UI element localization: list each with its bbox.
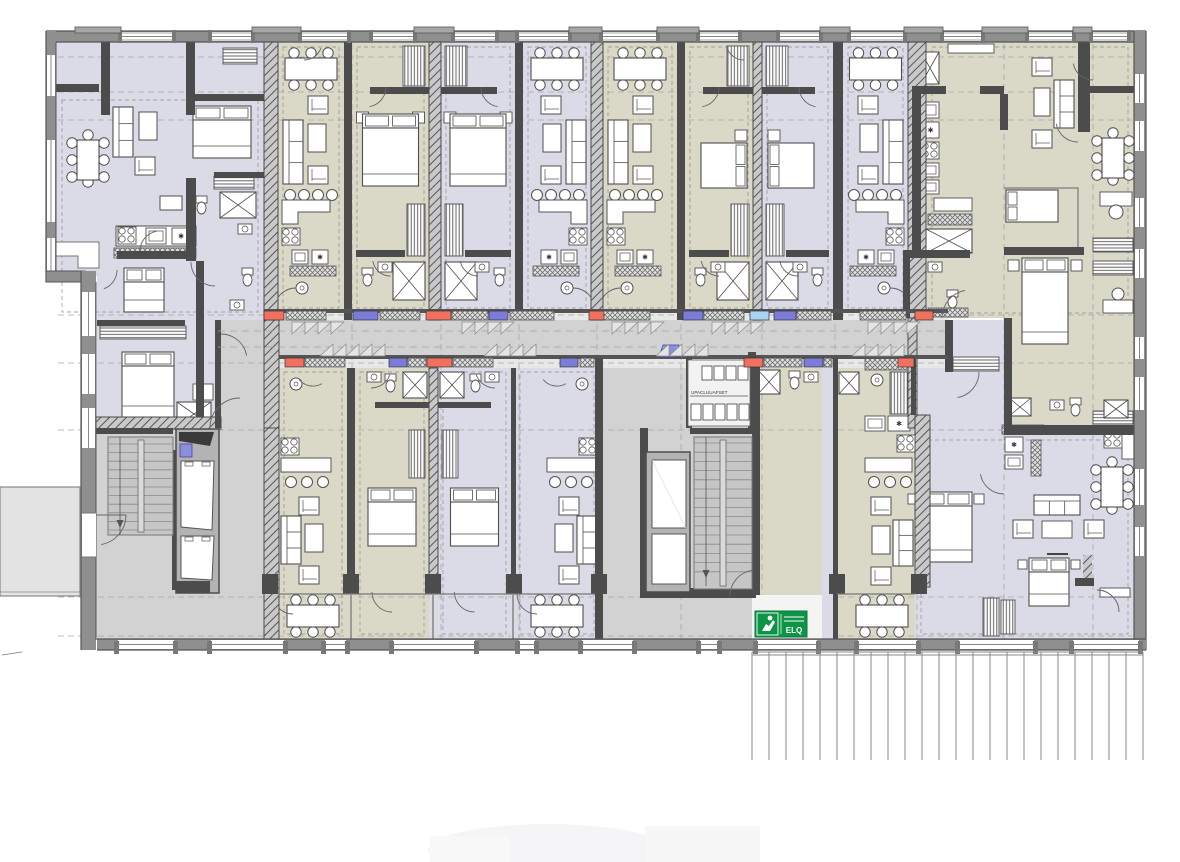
svg-text:✱: ✱ [863,254,869,262]
svg-text:UPACLUUAFSET: UPACLUUAFSET [691,390,728,395]
svg-text:✱: ✱ [546,254,552,262]
svg-text:ELQ: ELQ [786,626,802,635]
svg-text:✱: ✱ [642,254,648,262]
svg-text:✱: ✱ [178,233,184,241]
svg-text:✱: ✱ [928,127,934,135]
svg-text:✱: ✱ [317,254,323,262]
svg-text:✱: ✱ [1011,441,1017,449]
svg-text:✱: ✱ [896,420,902,428]
